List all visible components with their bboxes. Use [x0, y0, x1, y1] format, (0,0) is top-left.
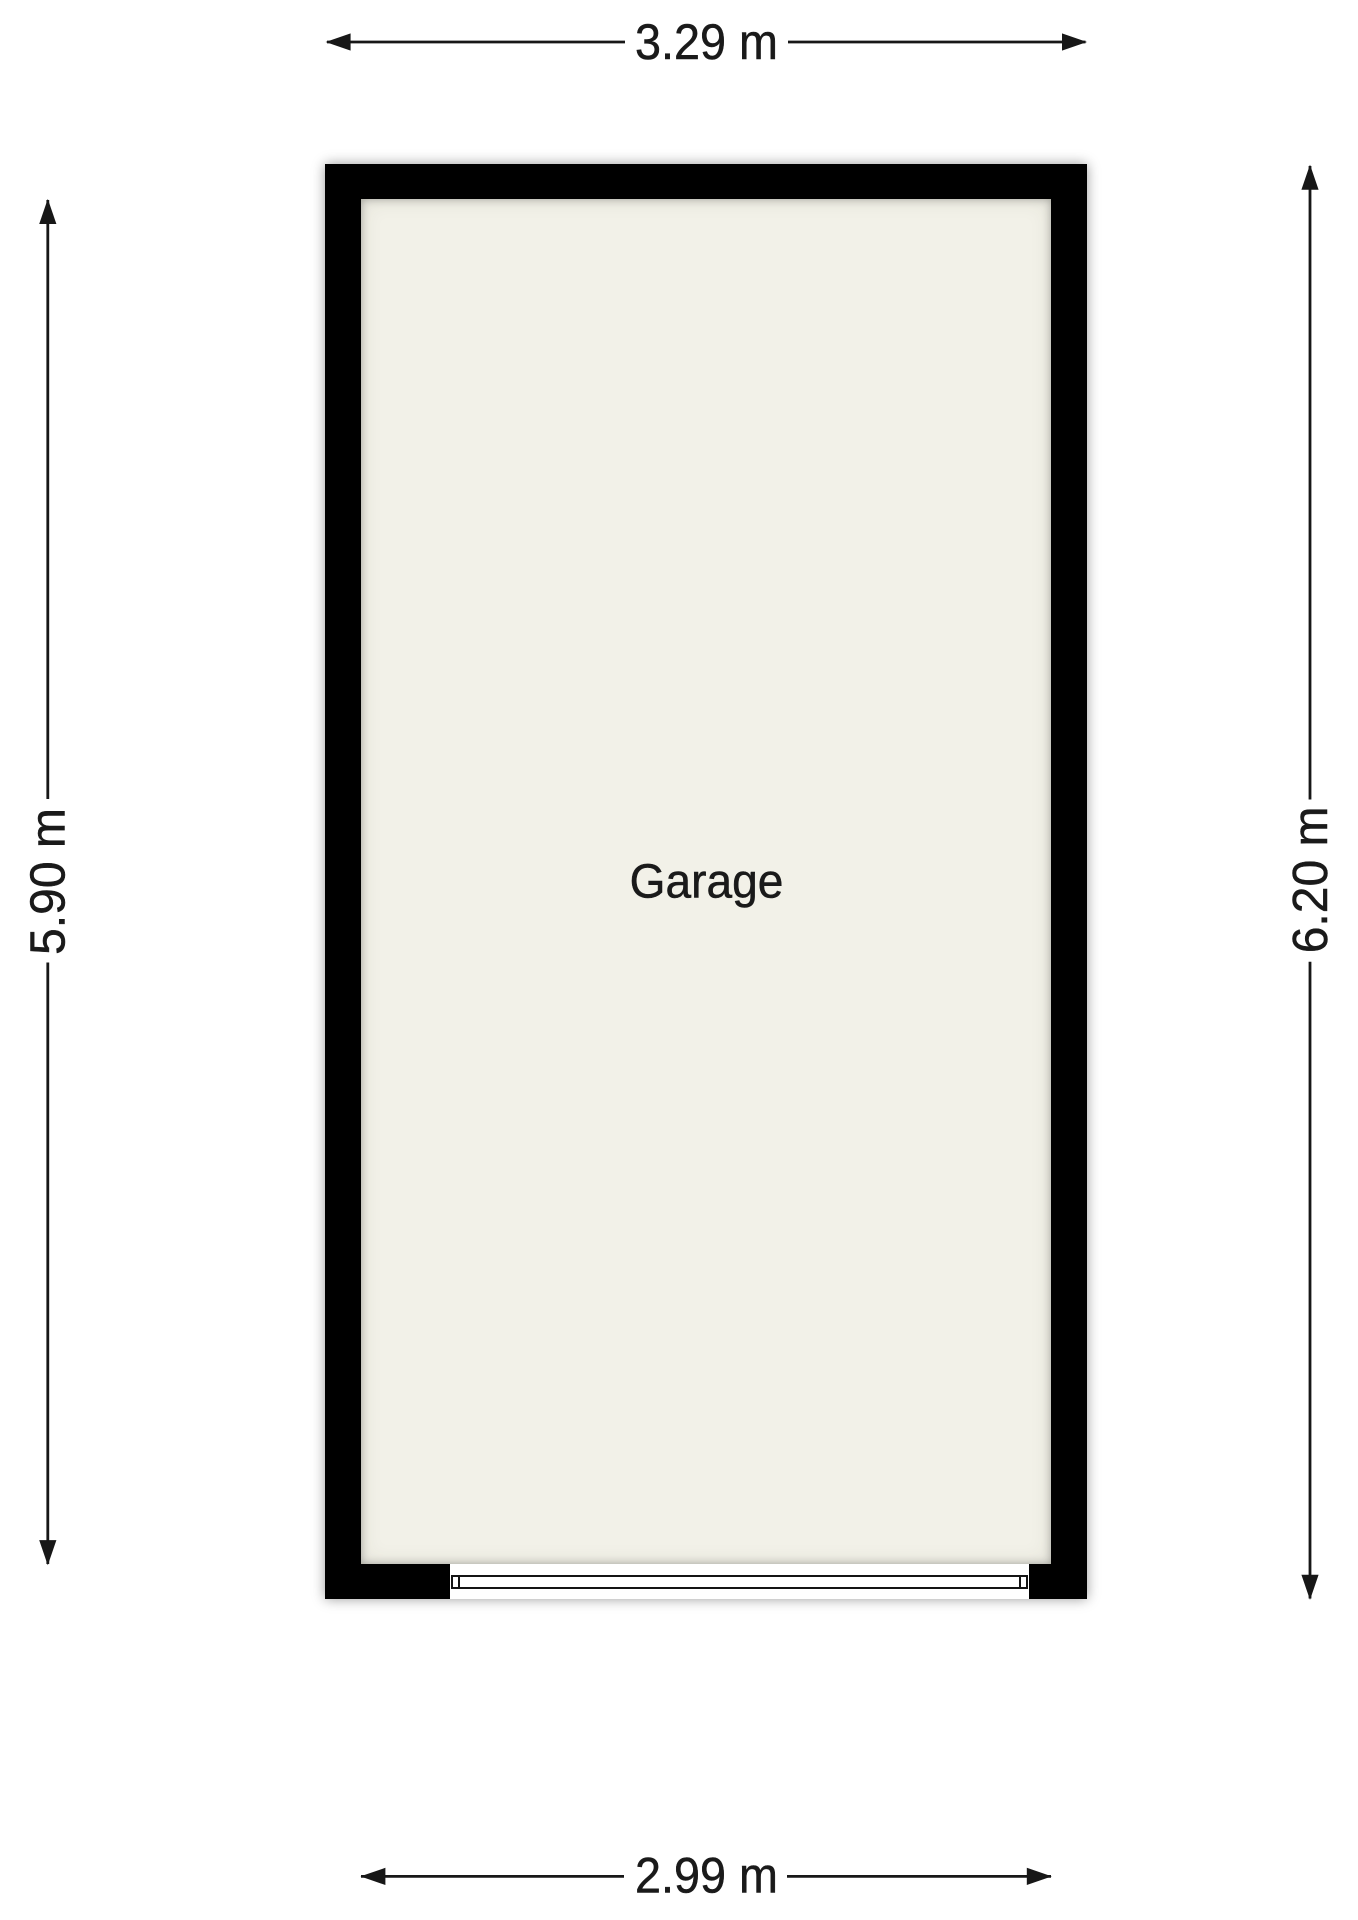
svg-text:3.29 m: 3.29 m	[635, 15, 778, 71]
svg-text:Garage: Garage	[630, 854, 784, 908]
svg-text:2.99 m: 2.99 m	[635, 1848, 778, 1904]
svg-text:5.90 m: 5.90 m	[21, 808, 76, 955]
svg-text:6.20 m: 6.20 m	[1283, 807, 1338, 954]
